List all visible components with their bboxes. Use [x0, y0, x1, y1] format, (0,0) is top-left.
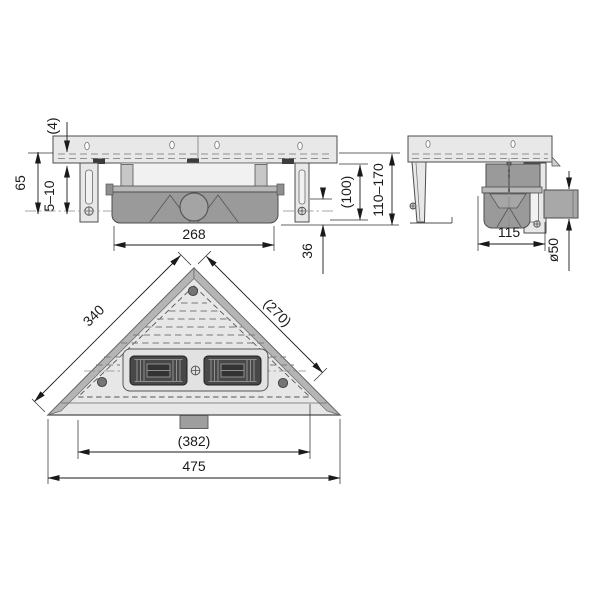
fixing-hook-right [277, 184, 284, 195]
side-view [408, 136, 578, 236]
siphon-rim [482, 187, 542, 193]
channel-end-left [121, 165, 133, 187]
mount-clip [282, 159, 294, 165]
dim-label-115: 115 [498, 224, 521, 240]
dim-label-340: 340 [80, 301, 108, 329]
dim-label-36: 36 [299, 243, 315, 259]
dim-label-5-10: 5–10 [41, 180, 57, 211]
wall-bracket-left [80, 163, 98, 222]
top-view [48, 268, 340, 429]
dim-label-268: 268 [182, 226, 206, 242]
drain-technical-drawing: (4) 65 5–10 268 36 (100) 110–170 [0, 0, 600, 600]
dim-label-475: 475 [182, 458, 206, 474]
outlet-stub [180, 416, 208, 429]
dim-label-382: (382) [178, 433, 211, 449]
support-leg [410, 162, 452, 223]
dim-label-100: (100) [338, 176, 354, 209]
channel-body [121, 163, 267, 187]
channel-end-right [255, 165, 267, 187]
technical-drawing-page: (4) 65 5–10 268 36 (100) 110–170 [0, 0, 600, 600]
dim-label-110-170: 110–170 [370, 163, 386, 217]
trough-rim [108, 186, 282, 192]
flange-hole [511, 141, 515, 148]
flange-hole [85, 142, 90, 150]
drain-grate-right [204, 356, 261, 385]
dim-label-o50: ø50 [545, 238, 561, 262]
dim-label-270: (270) [260, 295, 294, 329]
wall-bracket-right [295, 163, 309, 222]
cover-screw-top [188, 286, 197, 295]
dim-label-65: 65 [12, 175, 28, 191]
channel-section [486, 164, 540, 189]
fixing-hook-left [106, 184, 113, 195]
dim-label-flange: (4) [44, 117, 60, 134]
cover-screw-left [97, 377, 106, 386]
flange-hole [215, 141, 220, 149]
flange-hole [170, 141, 175, 149]
drain-grate-left [130, 356, 187, 385]
flange-hole [298, 142, 303, 150]
outlet-opening [180, 193, 208, 221]
flange-end-cap [552, 157, 560, 166]
front-view [25, 136, 337, 223]
flange-hole [426, 141, 430, 148]
cover-screw-right [278, 378, 287, 387]
